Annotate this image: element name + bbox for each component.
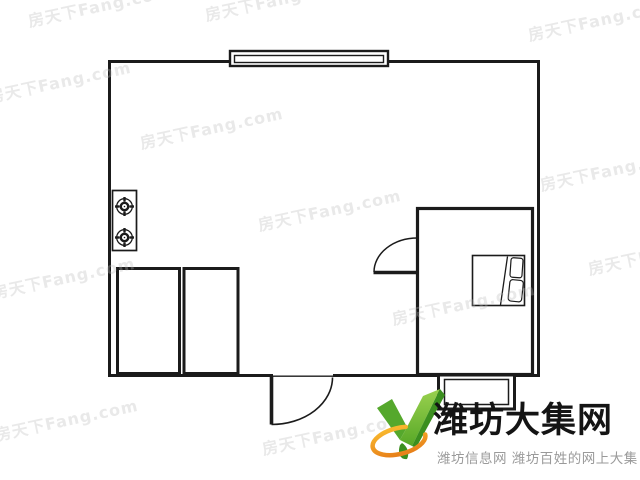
site-logo: 潍坊大集网 潍坊信息网 潍坊百姓的网上大集 <box>0 0 640 480</box>
floorplan-image: 房天下Fang.com房天下Fang.com房天下Fang.com房天下Fang… <box>0 0 640 480</box>
logo-subtitle: 潍坊信息网 潍坊百姓的网上大集 <box>437 447 638 467</box>
logo-title: 潍坊大集网 <box>433 403 613 440</box>
